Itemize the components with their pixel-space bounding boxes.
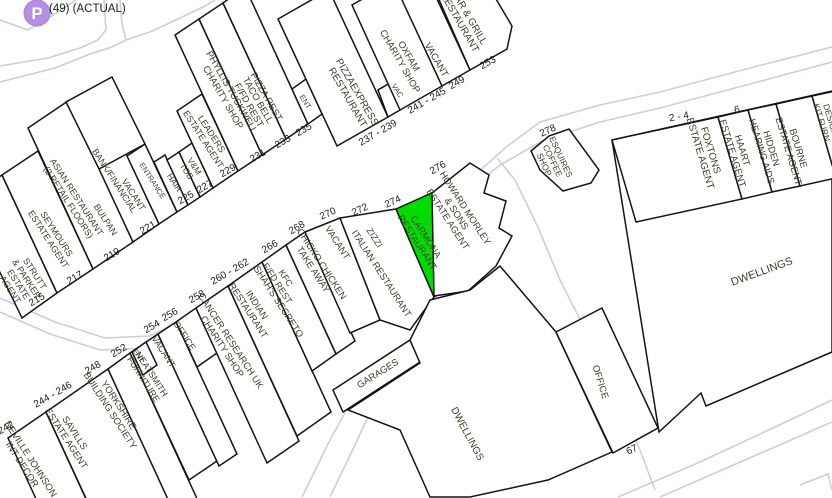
- road-topleft-kerb-a: [0, 0, 76, 30]
- road-bottomright-corner: [800, 474, 832, 490]
- goad-plan-canvas: STRUTT& PARKERESTATEAGENTSEYMOURSESTATE …: [0, 0, 832, 498]
- street-plan-map: STRUTT& PARKERESTATEAGENTSEYMOURSESTATE …: [0, 0, 832, 498]
- road-topleft-kerb-b: [0, 0, 106, 66]
- road-bottomright-kerb-2: [660, 422, 832, 497]
- street-number-6: 6: [733, 104, 741, 116]
- road-lane-kerb-2: [330, 408, 372, 497]
- road-topleft-kerb-c: [0, 0, 126, 82]
